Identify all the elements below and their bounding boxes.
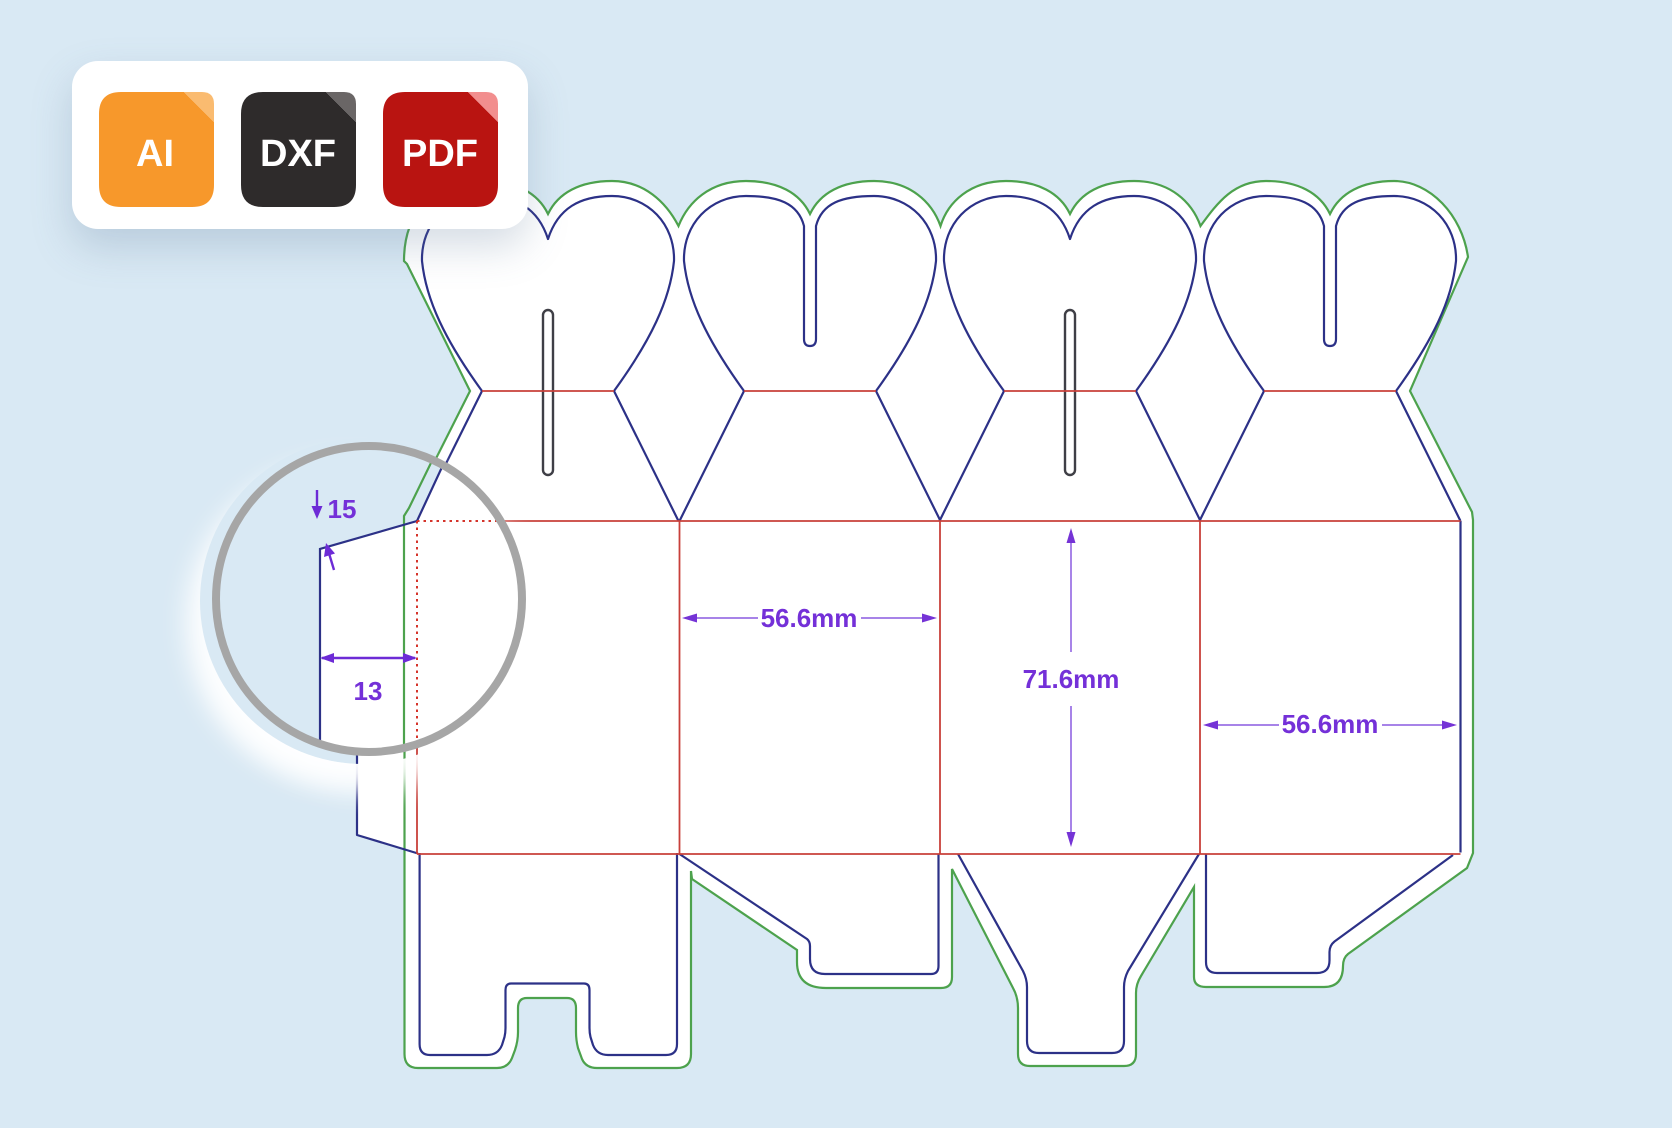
svg-text:DXF: DXF: [260, 133, 336, 175]
svg-text:56.6mm: 56.6mm: [1282, 709, 1379, 739]
svg-text:AI: AI: [136, 133, 174, 175]
svg-text:PDF: PDF: [402, 133, 478, 175]
svg-text:56.6mm: 56.6mm: [761, 603, 858, 633]
svg-text:71.6mm: 71.6mm: [1023, 664, 1120, 694]
